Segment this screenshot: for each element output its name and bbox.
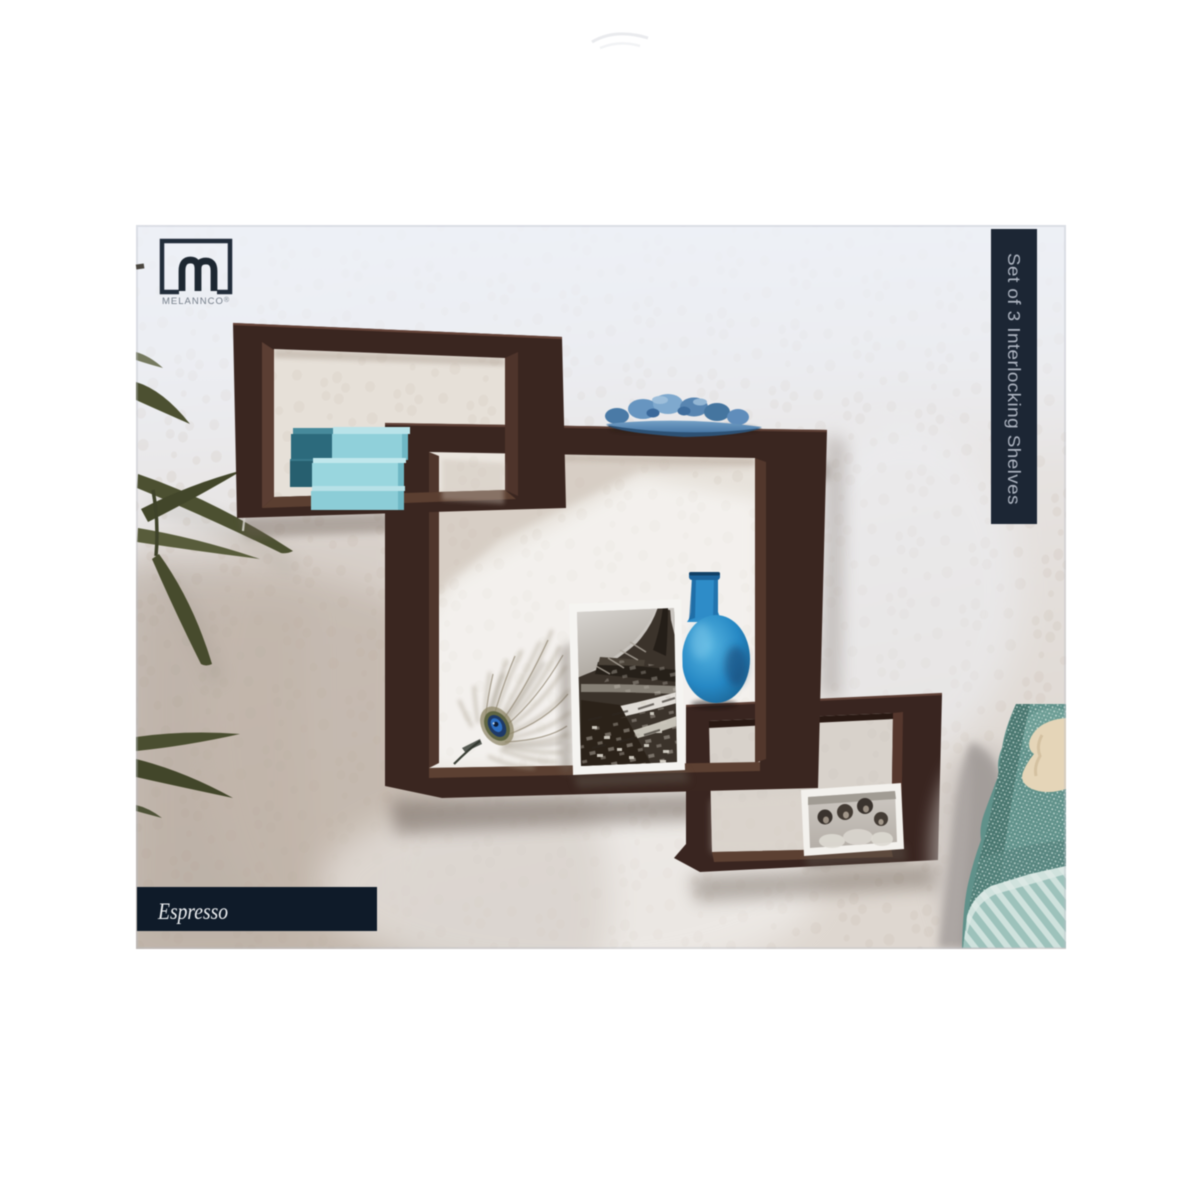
svg-text:MELANNCO®: MELANNCO® [162, 296, 230, 307]
svg-text:Espresso: Espresso [157, 899, 228, 924]
svg-text:Set of 3 Interlocking Shelves: Set of 3 Interlocking Shelves [1004, 253, 1024, 505]
